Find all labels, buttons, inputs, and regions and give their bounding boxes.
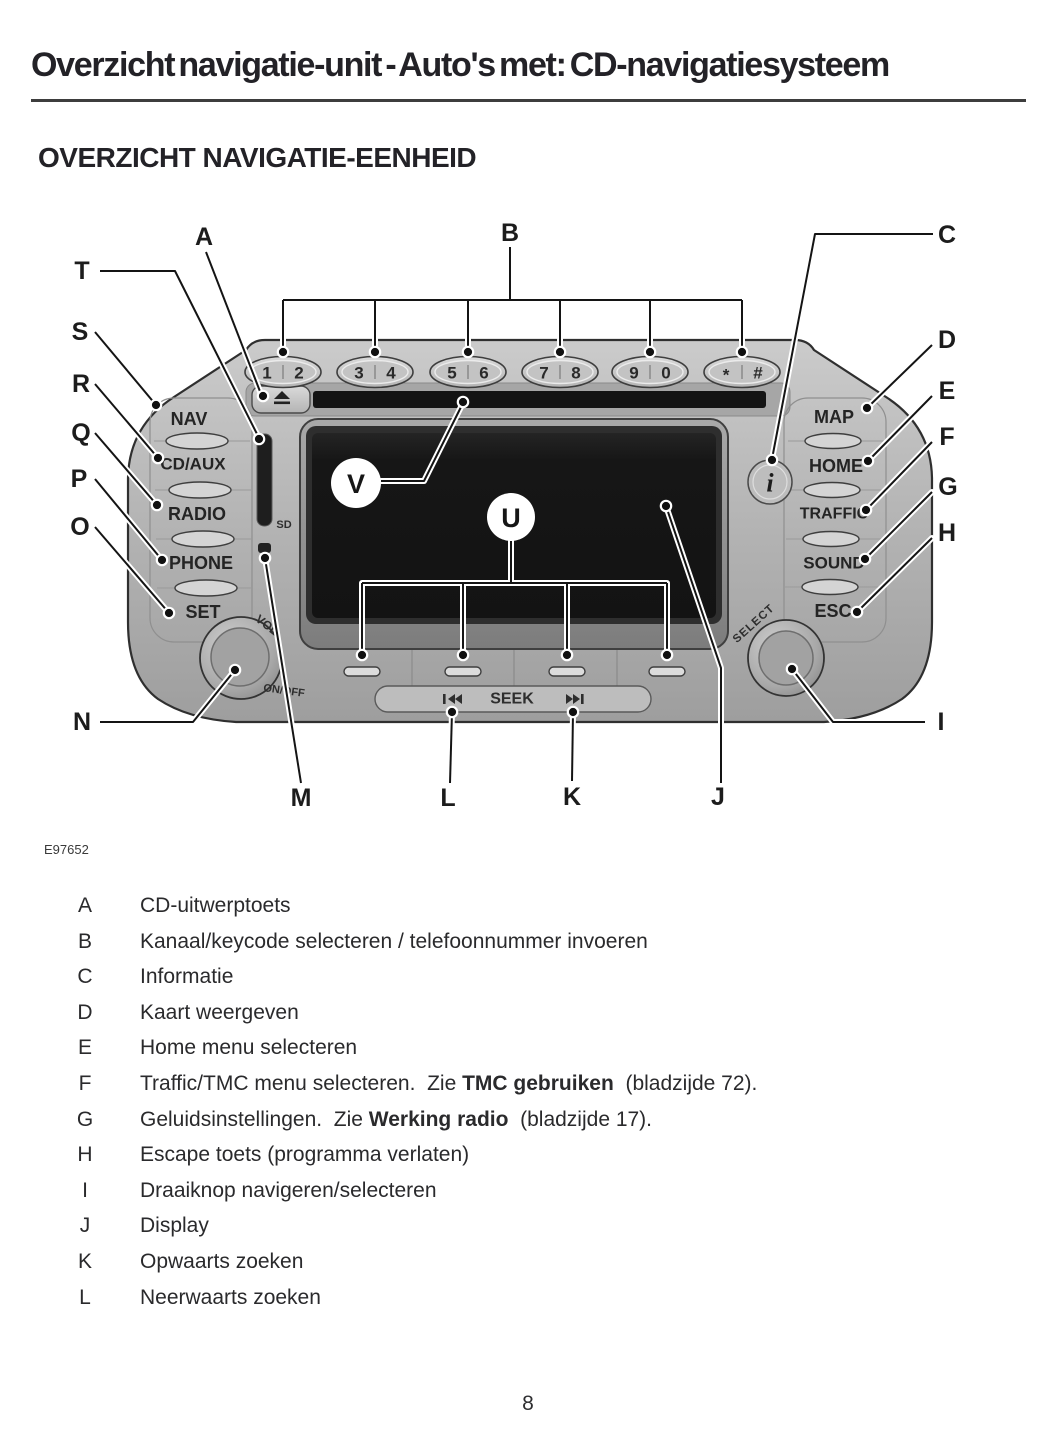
legend-description: Geluidsinstellingen. Zie Werking radio (… [140,1108,652,1132]
phone-button-label: PHONE [169,553,233,573]
svg-text:V: V [347,469,365,499]
legend-description: Neerwaarts zoeken [140,1286,321,1310]
seek-label: SEEK [490,691,534,708]
callout-bubble-u: U [487,493,535,541]
legend-letter: D [62,1001,108,1025]
microphone-hole [258,543,271,553]
svg-text:U: U [501,503,521,533]
map-button-label: MAP [814,407,854,427]
legend-row: ACD-uitwerptoets [0,894,1000,930]
legend-row: LNeerwaarts zoeken [0,1286,1000,1322]
callout-f: F [939,423,954,451]
callout-e: E [939,377,956,405]
callout-i: I [938,708,945,736]
page-number: 8 [0,1392,1056,1416]
legend-letter: I [62,1179,108,1203]
callout-q: Q [71,419,90,447]
legend-description: CD-uitwerptoets [140,894,291,918]
key-label: 7 [539,364,548,383]
page-title: Overzicht navigatie-unit - Auto's met: C… [31,46,889,85]
legend-description: Kanaal/keycode selecteren / telefoonnumm… [140,930,648,954]
key-5-6: 5 6 [430,357,506,388]
legend-row: JDisplay [0,1214,1000,1250]
softkey-4 [649,667,685,676]
esc-button-label: ESC [814,601,851,621]
info-button: i [748,460,792,504]
sd-label: SD [276,519,291,531]
set-button-label: SET [185,602,220,622]
callout-r: R [72,370,90,398]
traffic-button-label: TRAFFIC [800,506,869,523]
key-label: 3 [354,364,363,383]
navigation-unit-diagram: 1 2 3 4 5 6 [0,200,1056,825]
legend-letter: C [62,965,108,989]
legend-row: EHome menu selecteren [0,1036,1000,1072]
legend-letter: H [62,1143,108,1167]
legend-letter: E [62,1036,108,1060]
legend-description: Display [140,1214,209,1238]
legend-row: DKaart weergeven [0,1001,1000,1037]
legend-description: Informatie [140,965,233,989]
callout-t: T [74,257,89,285]
sound-button-label: SOUND [803,554,864,573]
legend: ACD-uitwerptoetsBKanaal/keycode selecter… [0,894,1000,1321]
key-9-0: 9 0 [612,357,688,388]
callout-h: H [938,519,956,547]
key-label: 0 [661,364,670,383]
cd-aux-button-label: CD/AUX [160,455,226,474]
legend-description: Kaart weergeven [140,1001,299,1025]
callout-n: N [73,708,91,736]
key-label: 2 [294,364,303,383]
softkey-1 [344,667,380,676]
cd-slot [313,391,766,408]
legend-description: Escape toets (programma verlaten) [140,1143,469,1167]
legend-description: Draaiknop navigeren/selecteren [140,1179,437,1203]
key-label: 8 [571,364,580,383]
callout-s: S [72,318,89,346]
key-label: 9 [629,364,638,383]
nav-button-label: NAV [171,409,208,429]
callout-g: G [938,473,957,501]
legend-row: KOpwaarts zoeken [0,1250,1000,1286]
key-label: 6 [479,364,488,383]
legend-row: BKanaal/keycode selecteren / telefoonnum… [0,930,1000,966]
title-divider [31,99,1026,102]
callout-k: K [563,783,581,811]
legend-row: IDraaiknop navigeren/selecteren [0,1179,1000,1215]
softkey-2 [445,667,481,676]
callout-o: O [70,513,89,541]
key-label: 4 [386,364,396,383]
callout-l: L [440,784,455,812]
callout-d: D [938,326,956,354]
legend-letter: A [62,894,108,918]
legend-row: HEscape toets (programma verlaten) [0,1143,1000,1179]
legend-letter: G [62,1108,108,1132]
legend-description: Opwaarts zoeken [140,1250,303,1274]
seek-bar: SEEK [375,686,651,712]
legend-description: Traffic/TMC menu selecteren. Zie TMC geb… [140,1072,757,1096]
section-heading: OVERZICHT NAVIGATIE-EENHEID [38,142,476,174]
legend-letter: F [62,1072,108,1096]
legend-letter: B [62,930,108,954]
legend-letter: J [62,1214,108,1238]
legend-letter: K [62,1250,108,1274]
key-3-4: 3 4 [337,357,413,388]
callout-b: B [501,219,519,247]
sd-card-slot [257,434,272,526]
legend-row: CInformatie [0,965,1000,1001]
callout-m: M [291,784,312,812]
key-label: 5 [447,364,456,383]
info-icon: i [766,469,774,498]
legend-letter: L [62,1286,108,1310]
legend-description: Home menu selecteren [140,1036,357,1060]
home-button-label: HOME [809,456,863,476]
radio-button-label: RADIO [168,504,226,524]
softkey-3 [549,667,585,676]
key-label: * [723,366,730,385]
callout-j: J [711,783,725,811]
manual-page: Overzicht navigatie-unit - Auto's met: C… [0,0,1056,1449]
key-label: 1 [262,364,271,383]
callout-c: C [938,221,956,249]
key-label: # [753,364,763,383]
figure-code: E97652 [44,842,89,857]
callout-a: A [195,223,213,251]
key-star-hash: * # [704,357,780,388]
legend-row: GGeluidsinstellingen. Zie Werking radio … [0,1108,1000,1144]
callout-p: P [71,465,88,493]
legend-row: FTraffic/TMC menu selecteren. Zie TMC ge… [0,1072,1000,1108]
callout-bubble-v: V [331,458,381,508]
key-7-8: 7 8 [522,357,598,388]
